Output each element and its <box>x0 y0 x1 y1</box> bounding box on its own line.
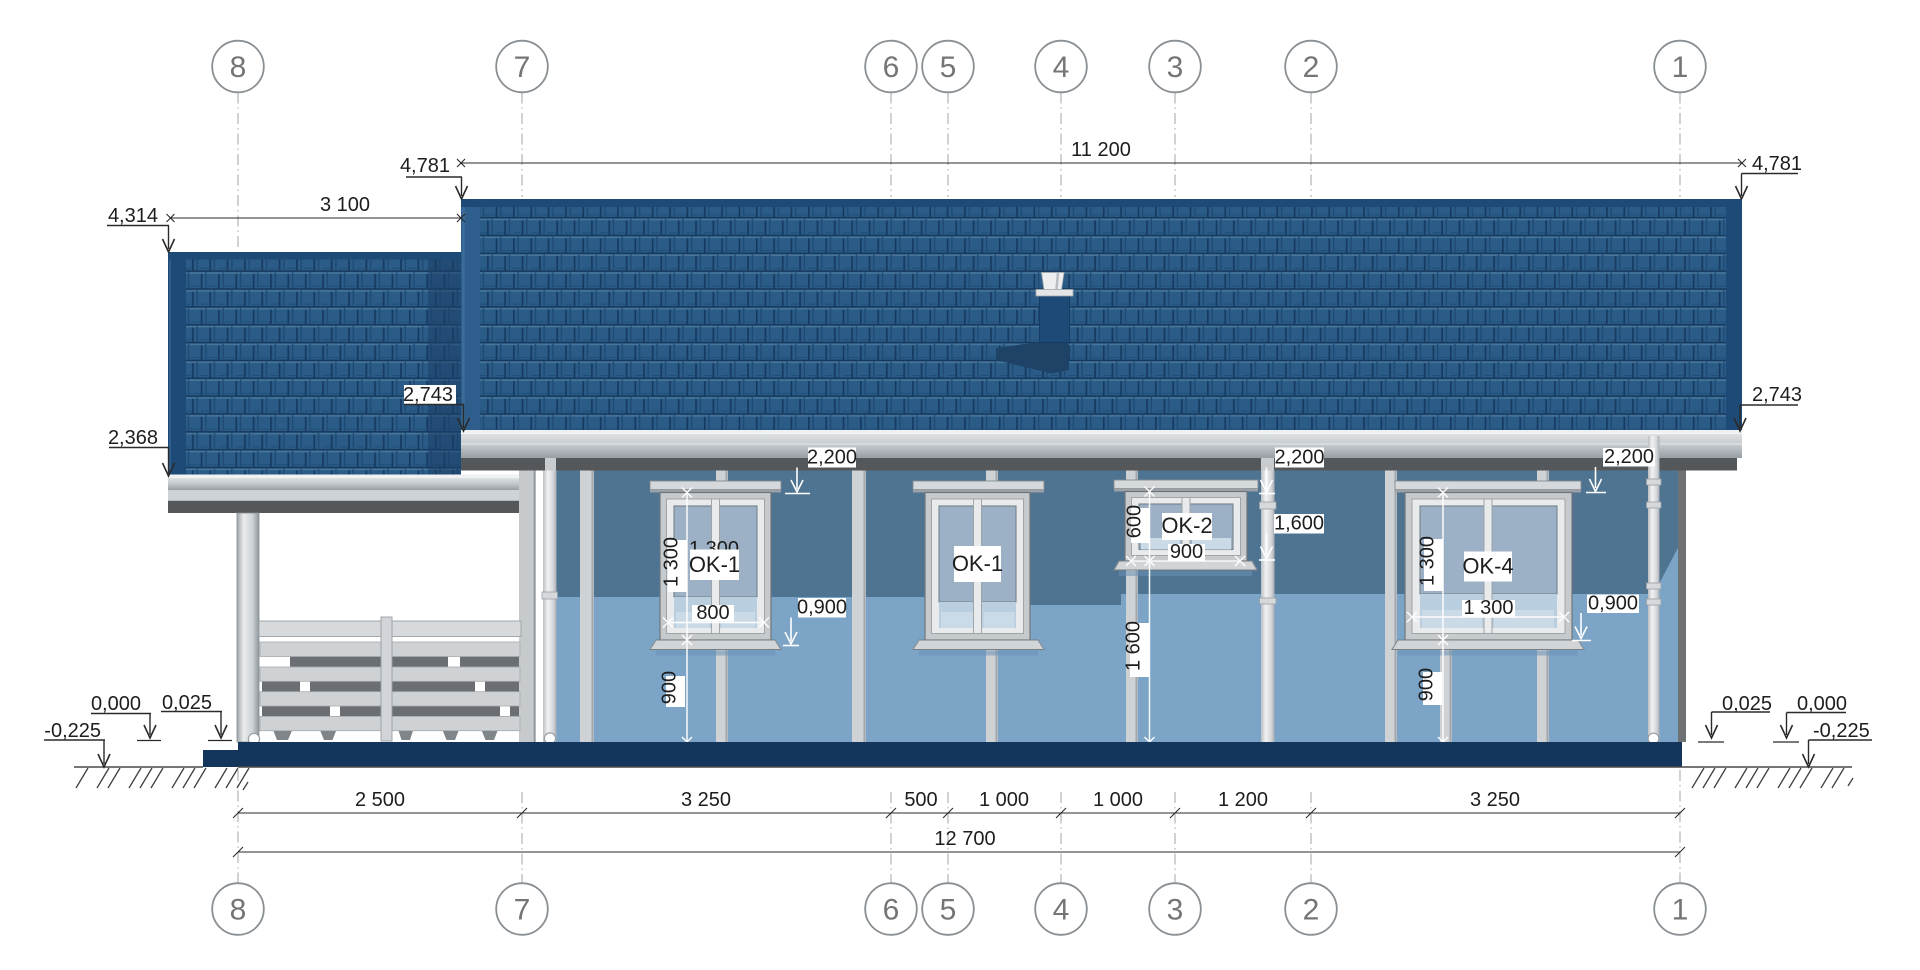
svg-text:600: 600 <box>1124 505 1146 538</box>
svg-text:1 300: 1 300 <box>661 537 683 587</box>
svg-text:1 200: 1 200 <box>1218 789 1268 811</box>
svg-text:8: 8 <box>230 51 247 84</box>
svg-text:0,000: 0,000 <box>91 693 141 715</box>
svg-text:1: 1 <box>1672 894 1689 927</box>
svg-text:-0,225: -0,225 <box>44 720 101 742</box>
svg-text:6: 6 <box>883 51 900 84</box>
svg-text:2,743: 2,743 <box>403 384 453 406</box>
svg-text:5: 5 <box>940 894 957 927</box>
svg-text:1: 1 <box>1672 51 1689 84</box>
svg-text:1 000: 1 000 <box>979 789 1029 811</box>
svg-text:900: 900 <box>1416 668 1438 701</box>
svg-text:7: 7 <box>514 894 531 927</box>
svg-text:3: 3 <box>1167 51 1184 84</box>
svg-text:0,900: 0,900 <box>1588 593 1638 615</box>
svg-text:11 200: 11 200 <box>1071 139 1131 161</box>
svg-text:OK-4: OK-4 <box>1462 554 1513 579</box>
svg-text:1 000: 1 000 <box>1093 789 1143 811</box>
svg-text:1 300: 1 300 <box>1463 597 1513 619</box>
svg-text:4: 4 <box>1053 51 1070 84</box>
svg-text:8: 8 <box>230 894 247 927</box>
svg-text:0,000: 0,000 <box>1797 693 1847 715</box>
svg-text:3 250: 3 250 <box>681 789 731 811</box>
svg-text:2,200: 2,200 <box>1274 447 1324 469</box>
svg-text:2,200: 2,200 <box>1604 446 1654 468</box>
svg-text:1,600: 1,600 <box>1274 513 1324 535</box>
svg-text:900: 900 <box>1170 541 1203 563</box>
svg-text:4,314: 4,314 <box>108 205 158 227</box>
svg-text:800: 800 <box>696 602 729 624</box>
svg-text:1 600: 1 600 <box>1123 621 1145 671</box>
svg-text:OK-2: OK-2 <box>1161 513 1212 538</box>
svg-text:4,781: 4,781 <box>400 155 450 177</box>
svg-text:2,368: 2,368 <box>108 427 158 449</box>
svg-text:2: 2 <box>1303 894 1320 927</box>
svg-text:OK-1: OK-1 <box>952 551 1003 576</box>
svg-text:5: 5 <box>940 51 957 84</box>
svg-text:4,781: 4,781 <box>1752 153 1802 175</box>
svg-text:2: 2 <box>1303 51 1320 84</box>
svg-text:3: 3 <box>1167 894 1184 927</box>
svg-text:3 250: 3 250 <box>1470 789 1520 811</box>
svg-text:7: 7 <box>514 51 531 84</box>
svg-text:2,200: 2,200 <box>807 447 857 469</box>
svg-text:500: 500 <box>904 789 937 811</box>
svg-text:0,025: 0,025 <box>162 692 212 714</box>
svg-text:12 700: 12 700 <box>934 828 995 850</box>
svg-text:6: 6 <box>883 894 900 927</box>
svg-text:2,743: 2,743 <box>1752 384 1802 406</box>
svg-text:2 500: 2 500 <box>355 789 405 811</box>
svg-text:3 100: 3 100 <box>320 194 370 216</box>
svg-text:-0,225: -0,225 <box>1813 720 1870 742</box>
svg-text:4: 4 <box>1053 894 1070 927</box>
svg-text:900: 900 <box>659 671 681 704</box>
svg-text:OK-1: OK-1 <box>689 552 740 577</box>
svg-text:0,900: 0,900 <box>797 597 847 619</box>
svg-text:1 300: 1 300 <box>1417 536 1439 586</box>
